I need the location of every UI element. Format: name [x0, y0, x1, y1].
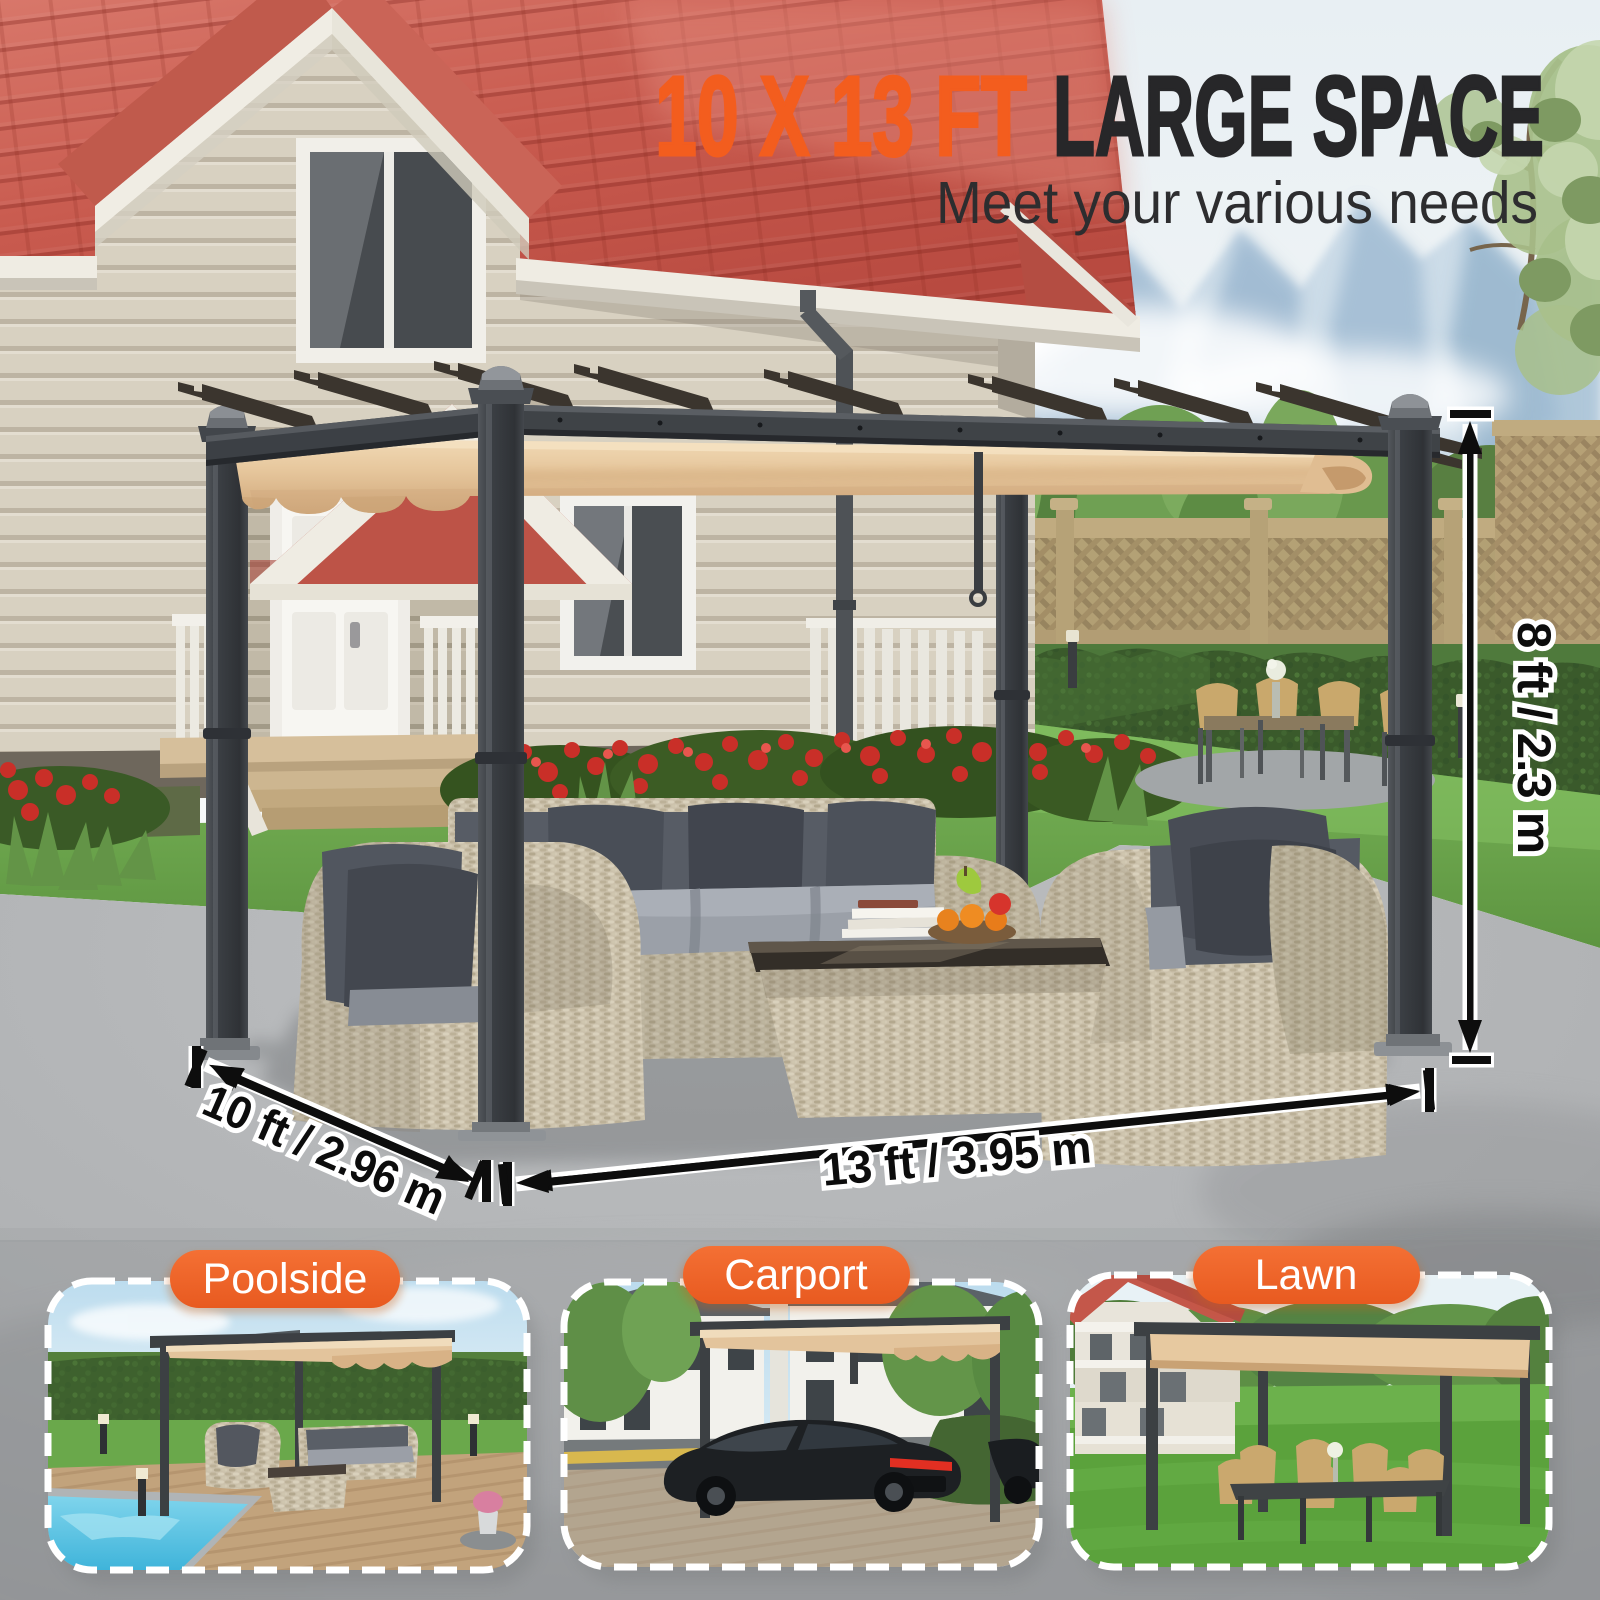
svg-text:Poolside: Poolside — [203, 1255, 368, 1303]
svg-text:Lawn: Lawn — [1255, 1251, 1358, 1299]
svg-text:Meet your various needs: Meet your various needs — [936, 170, 1538, 236]
svg-text:Carport: Carport — [724, 1251, 867, 1299]
svg-text:8 ft / 2.3 m: 8 ft / 2.3 m — [1508, 622, 1561, 854]
svg-text:10 X 13 FT: 10 X 13 FT — [655, 53, 1027, 179]
svg-text:LARGE SPACE: LARGE SPACE — [1053, 53, 1544, 179]
